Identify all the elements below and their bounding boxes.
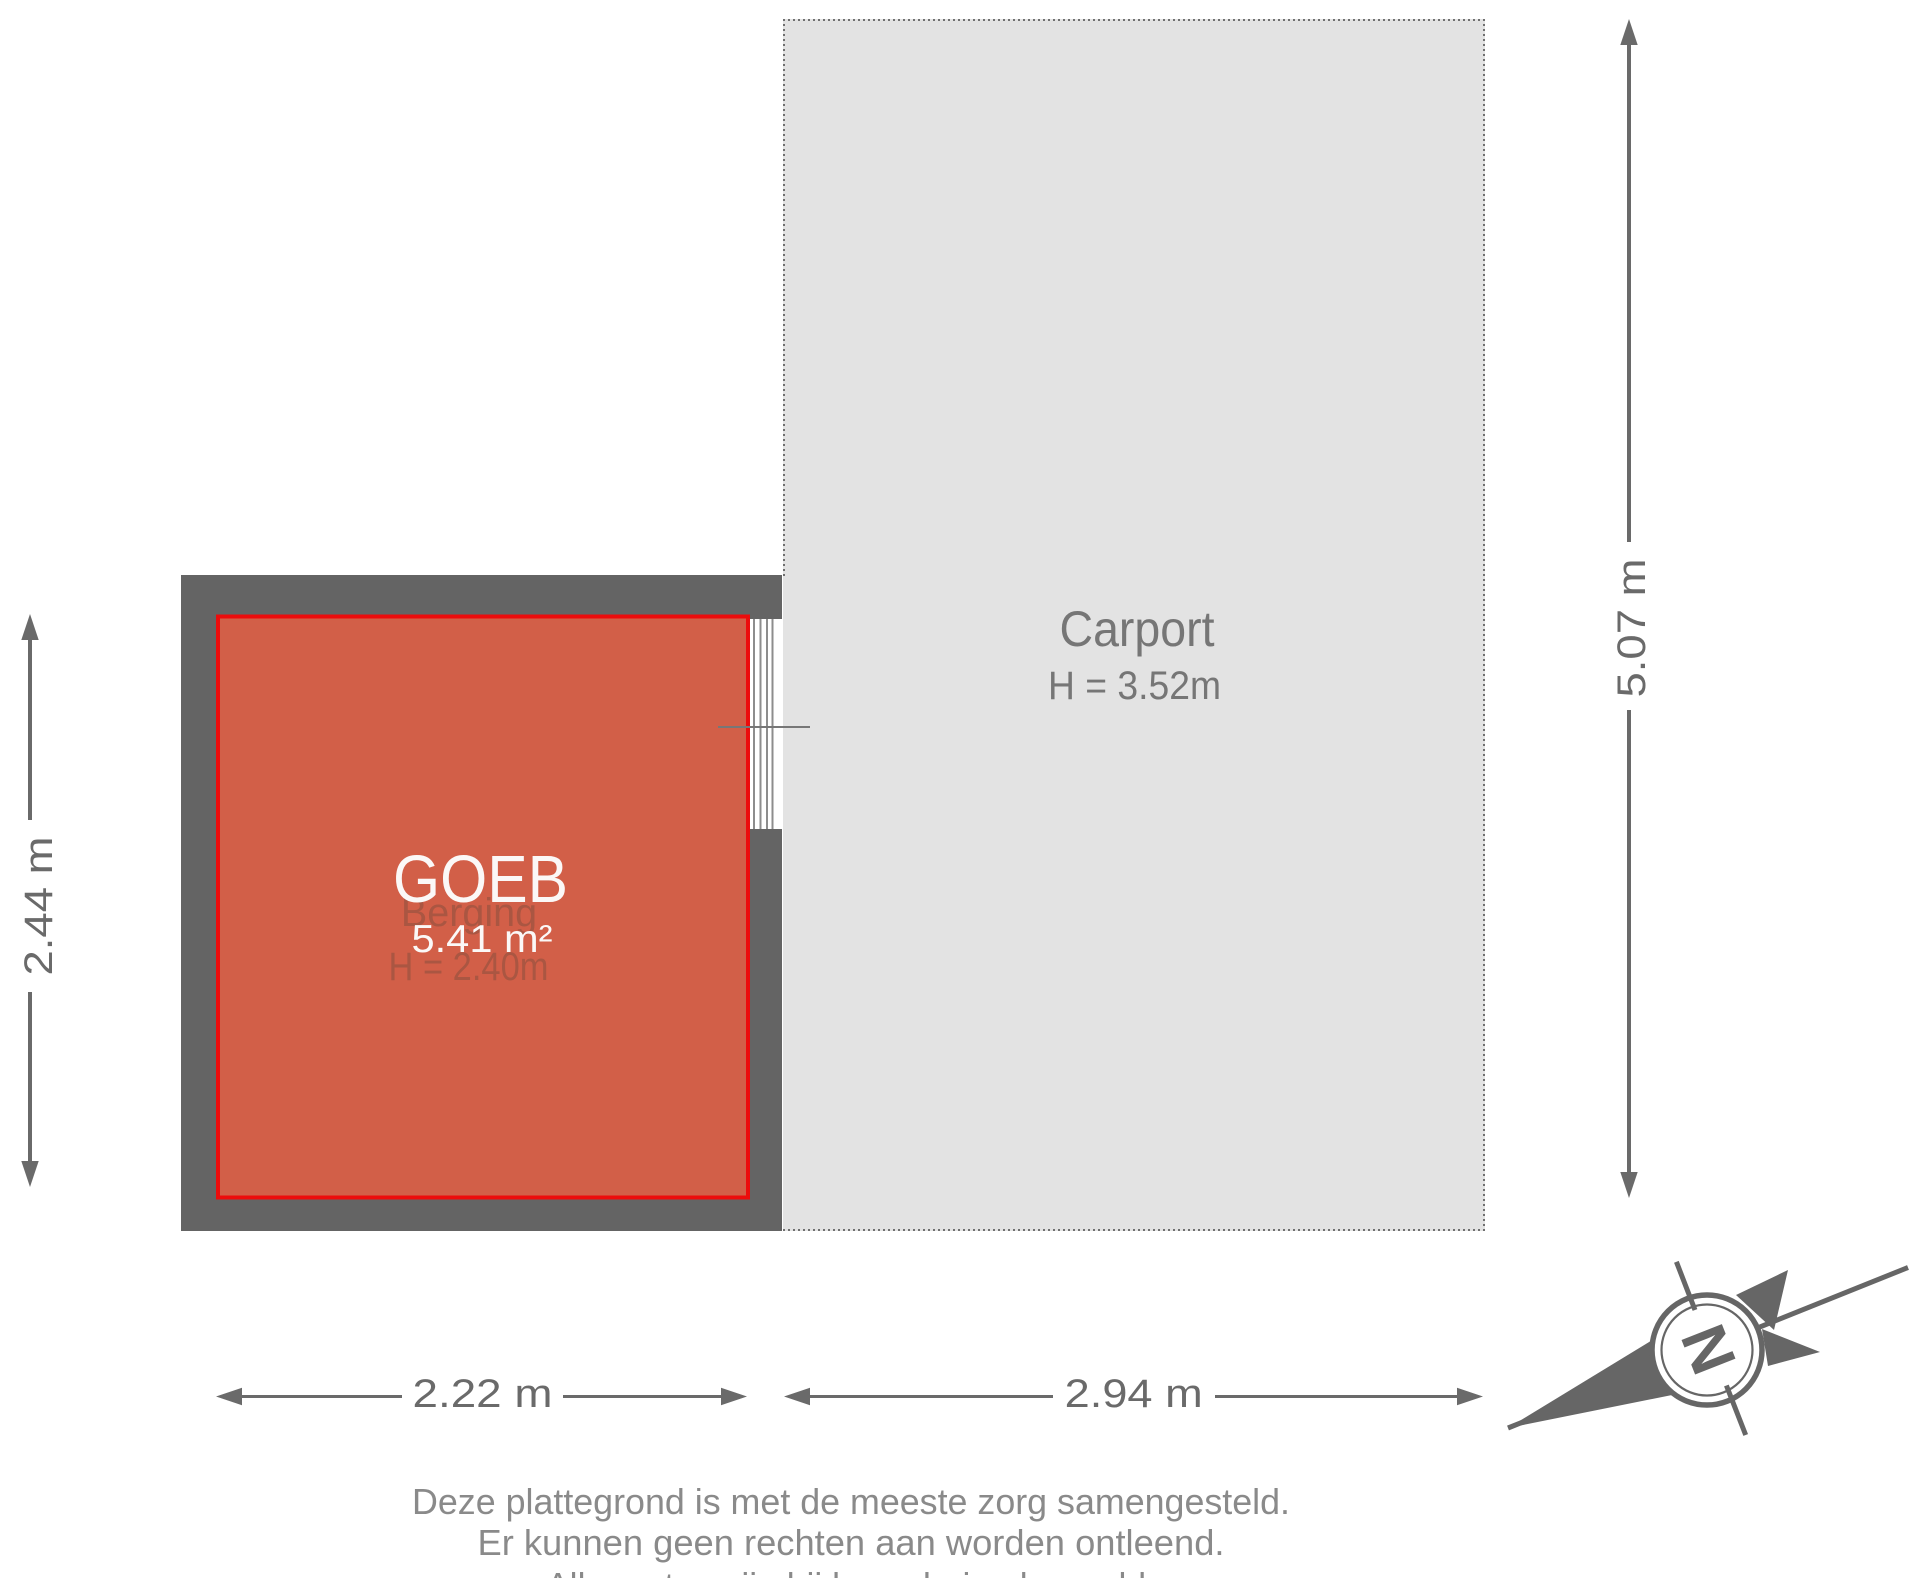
svg-text:Deze plattegrond is met de mee: Deze plattegrond is met de meeste zorg s… [412, 1481, 1290, 1522]
svg-text:5.07 m: 5.07 m [1610, 559, 1654, 698]
svg-text:2.44 m: 2.44 m [17, 837, 61, 976]
svg-text:Er kunnen geen rechten aan wor: Er kunnen geen rechten aan worden ontlee… [478, 1522, 1225, 1563]
svg-text:Alle maten zijn bij benadering: Alle maten zijn bij benadering bepaald. [546, 1565, 1156, 1578]
svg-text:2.22 m: 2.22 m [413, 1372, 553, 1416]
svg-text:H = 3.52m: H = 3.52m [1048, 664, 1221, 708]
svg-text:2.94 m: 2.94 m [1065, 1372, 1203, 1416]
svg-text:5.41 m²: 5.41 m² [412, 918, 553, 961]
svg-text:GOEB: GOEB [393, 842, 568, 917]
svg-text:Carport: Carport [1060, 601, 1215, 657]
